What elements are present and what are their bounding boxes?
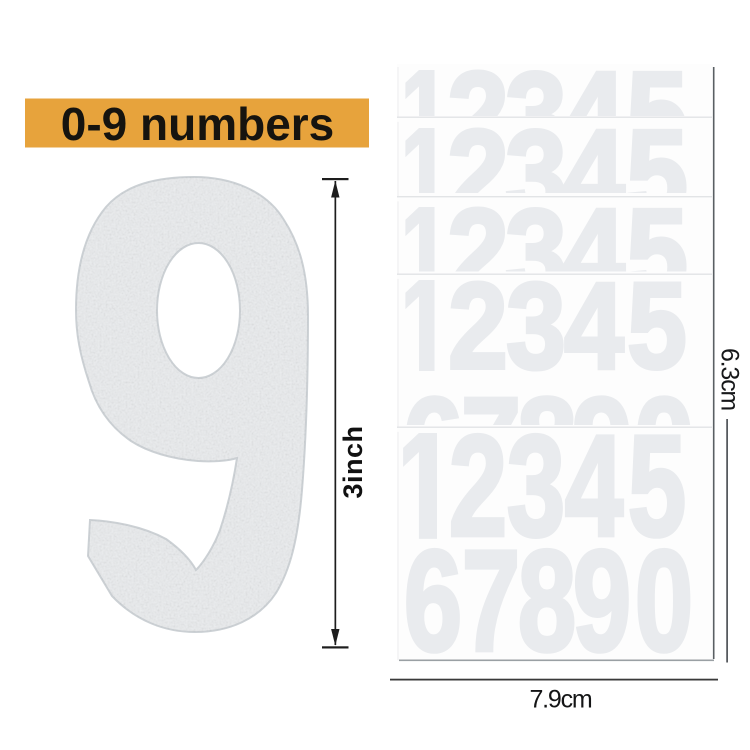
- svg-text:7.9cm: 7.9cm: [529, 686, 591, 714]
- svg-text:6.3cm: 6.3cm: [715, 348, 743, 410]
- svg-text:9: 9: [573, 520, 631, 681]
- svg-text:8: 8: [518, 520, 576, 681]
- svg-text:6: 6: [404, 520, 462, 681]
- svg-text:0: 0: [635, 520, 693, 681]
- svg-text:3inch: 3inch: [338, 425, 368, 498]
- svg-text:7: 7: [462, 520, 520, 681]
- svg-text:0-9 numbers: 0-9 numbers: [61, 98, 335, 150]
